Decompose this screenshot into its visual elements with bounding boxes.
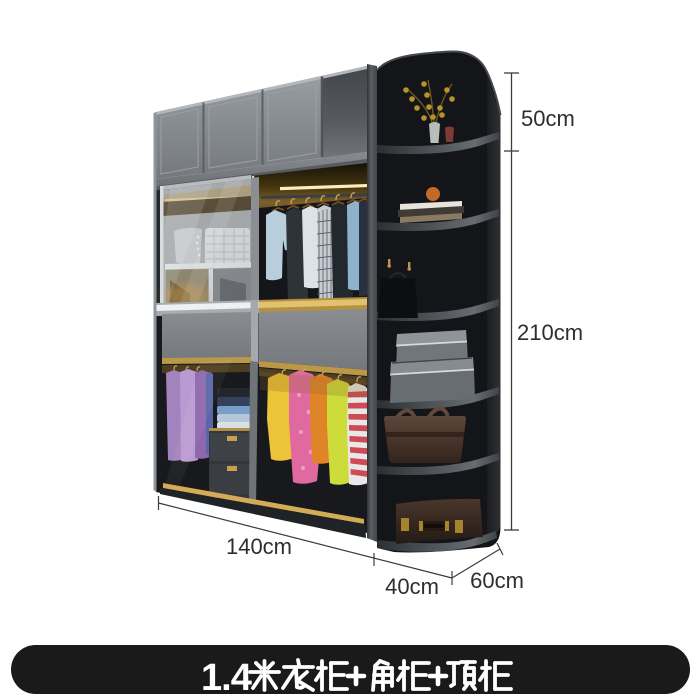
svg-text:210cm: 210cm [517,320,583,345]
svg-text:140cm: 140cm [226,534,292,559]
svg-text:40cm: 40cm [385,574,439,599]
svg-text:60cm: 60cm [470,568,524,593]
svg-text:50cm: 50cm [521,106,575,131]
svg-text:1.4: 1.4 [201,657,252,699]
